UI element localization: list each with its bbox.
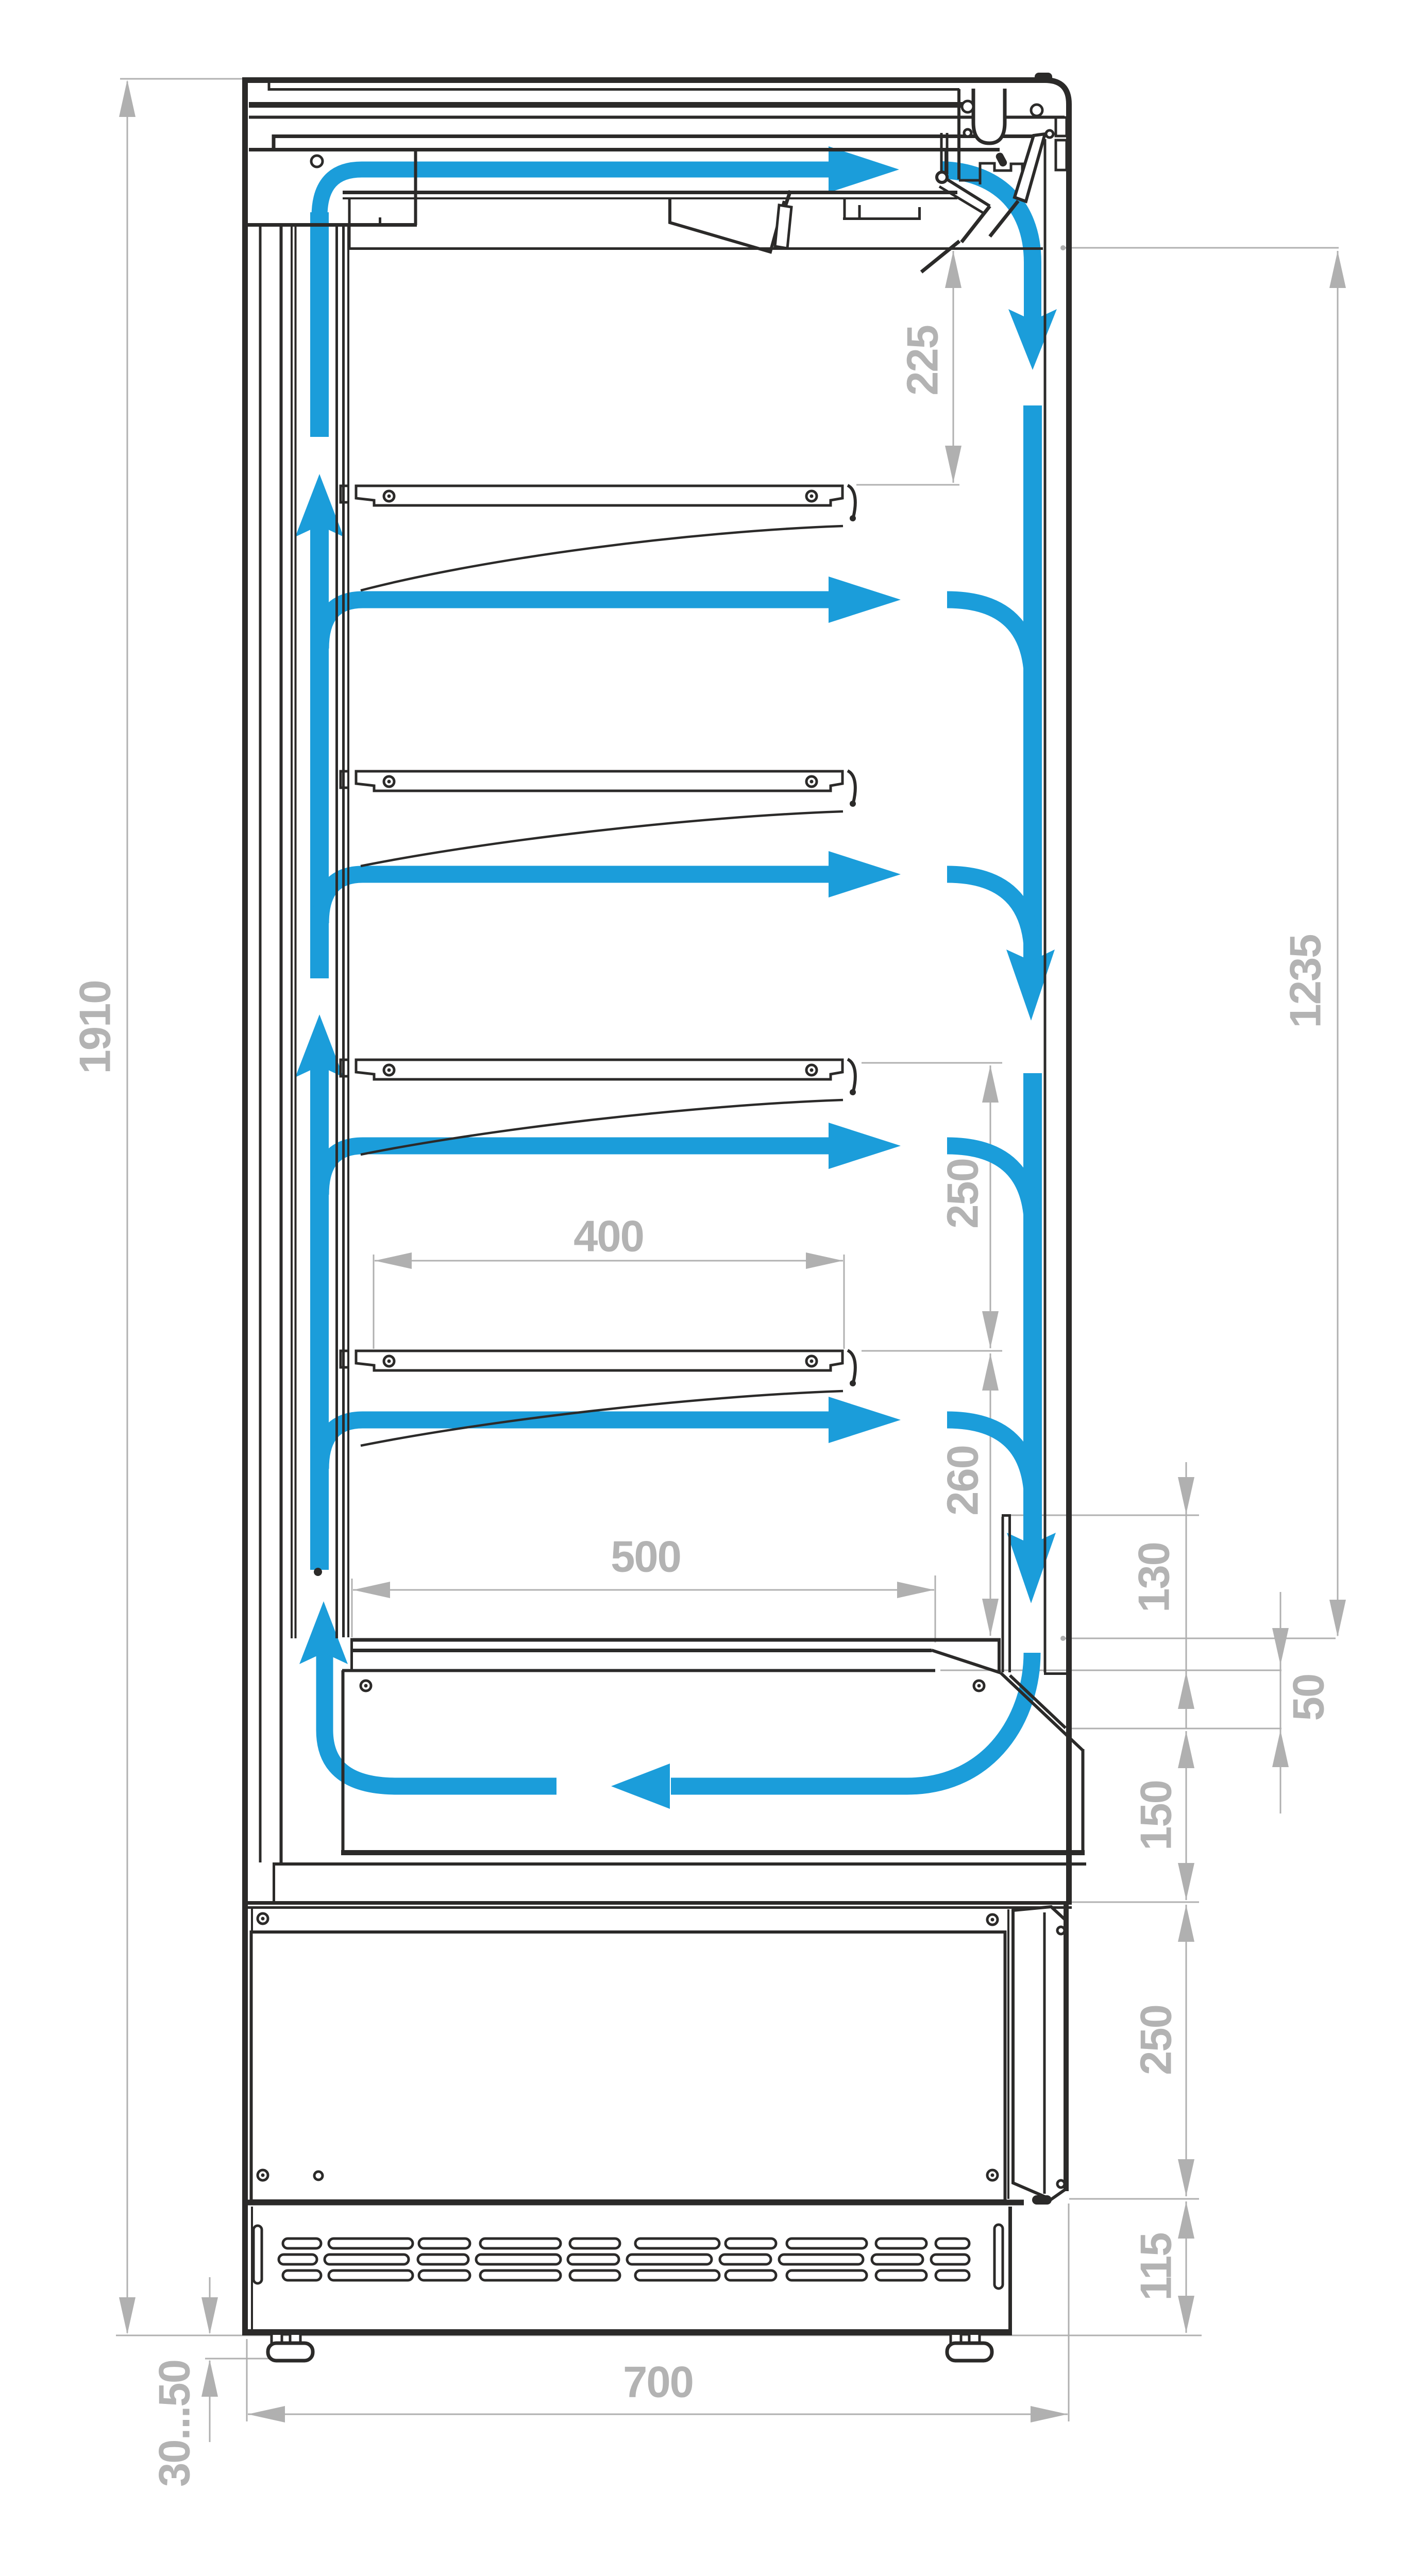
svg-text:115: 115	[1132, 2233, 1181, 2300]
svg-text:400: 400	[573, 1212, 644, 1261]
svg-text:500: 500	[611, 1533, 681, 1582]
svg-text:150: 150	[1132, 1781, 1181, 1851]
svg-text:1235: 1235	[1281, 935, 1330, 1028]
svg-text:250: 250	[1132, 2005, 1181, 2075]
svg-text:700: 700	[623, 2358, 693, 2407]
svg-text:30...50: 30...50	[150, 2360, 199, 2487]
svg-text:50: 50	[1285, 1674, 1334, 1721]
svg-text:260: 260	[939, 1446, 988, 1516]
svg-text:1910: 1910	[71, 980, 120, 1074]
svg-text:250: 250	[939, 1159, 988, 1229]
svg-text:225: 225	[899, 326, 948, 396]
svg-text:130: 130	[1130, 1543, 1179, 1613]
